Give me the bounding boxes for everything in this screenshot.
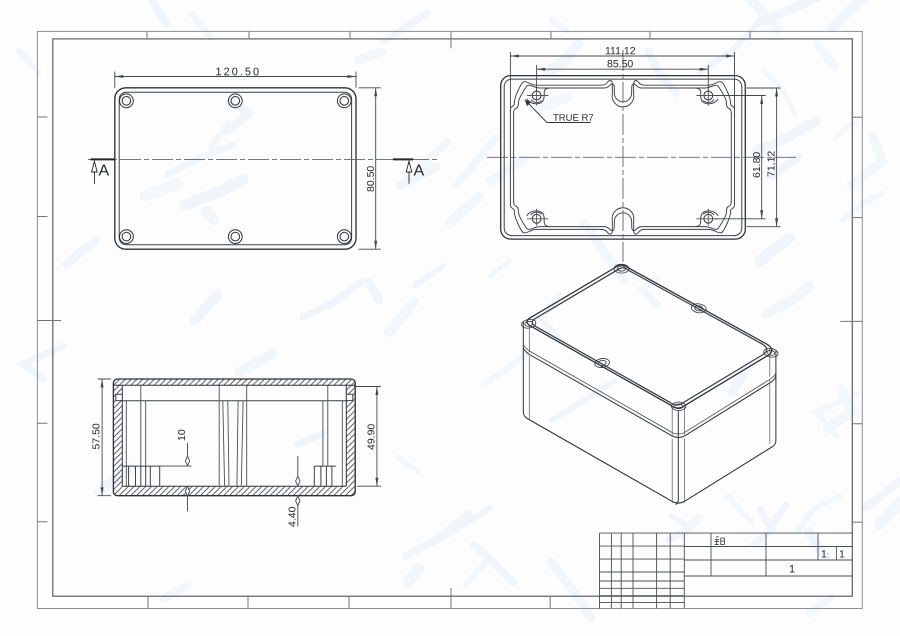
- svg-text:1:: 1:: [821, 549, 829, 561]
- svg-text:80.50: 80.50: [365, 166, 377, 192]
- svg-text:A: A: [413, 163, 424, 180]
- svg-text:1: 1: [789, 564, 795, 576]
- svg-text:85.50: 85.50: [607, 58, 633, 70]
- svg-text:49.90: 49.90: [365, 424, 377, 450]
- svg-text:57.50: 57.50: [90, 423, 102, 449]
- svg-text:1: 1: [839, 549, 845, 561]
- svg-text:4.40: 4.40: [286, 506, 298, 527]
- svg-text:TRUE R7: TRUE R7: [553, 113, 594, 124]
- svg-text:10: 10: [176, 429, 188, 441]
- svg-text:111,12: 111,12: [605, 45, 636, 57]
- svg-text:120.50: 120.50: [215, 66, 261, 78]
- svg-text:61.80: 61.80: [751, 152, 763, 178]
- svg-text:A: A: [98, 163, 109, 180]
- svg-text:71,12: 71,12: [766, 151, 778, 177]
